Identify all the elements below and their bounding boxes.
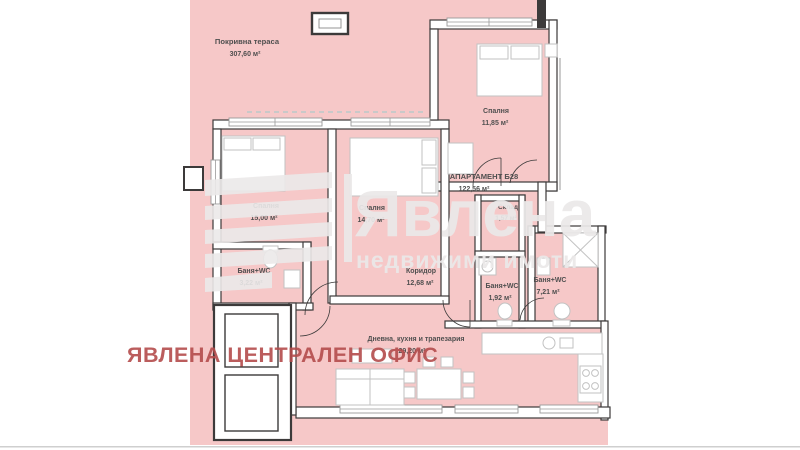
- terrace-label: Покривна тераса: [215, 37, 280, 46]
- office-stamp: ЯВЛЕНА ЦЕНТРАЛЕН ОФИС: [127, 343, 438, 367]
- terrace-area: 307,60 м²: [230, 51, 262, 58]
- watermark-brand: Явлена: [354, 176, 597, 250]
- stair-core: [214, 305, 291, 440]
- bottom-border: [0, 446, 800, 448]
- terrace-column: [184, 167, 203, 190]
- bath2-label: Баня+WC: [486, 283, 519, 290]
- chimney: [312, 13, 348, 34]
- corridor-area: 12,68 м²: [407, 280, 435, 287]
- watermark-tagline: недвижими имоти: [356, 247, 578, 273]
- floor-plan-page: Покривна тераса 307,60 м² Спалня 11,85 м…: [0, 0, 800, 450]
- bedroom1-area: 11,85 м²: [482, 120, 509, 127]
- bath2-area: 1,92 м²: [488, 295, 512, 302]
- floor-plan-svg: Покривна тераса 307,60 м² Спалня 11,85 м…: [0, 0, 800, 450]
- living-label: Дневна, кухня и трапезария: [368, 336, 465, 343]
- bedroom1-label: Спалня: [483, 108, 509, 115]
- bath3-label: Баня+WC: [534, 277, 567, 284]
- bath3-area: 7,21 м²: [536, 289, 560, 296]
